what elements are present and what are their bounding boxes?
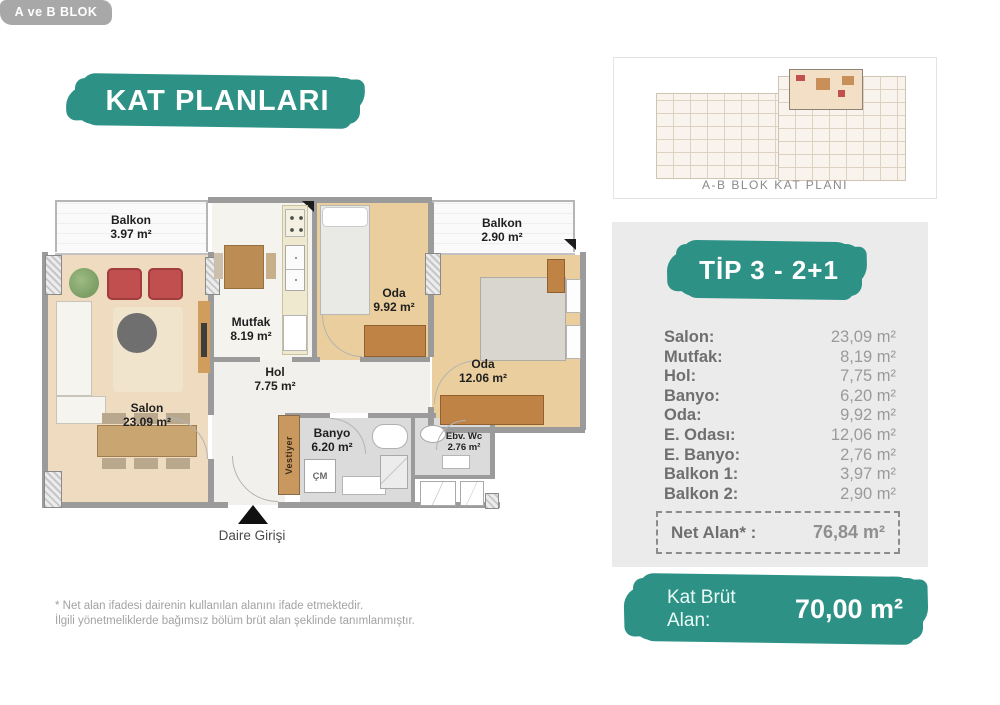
balcony-door-line — [432, 252, 575, 255]
room-name: Ebv. Wc — [446, 431, 482, 442]
gross-area-value: 70,00 m² — [779, 594, 903, 625]
wc-sink — [442, 455, 470, 469]
mini-plan-left-wing — [656, 93, 780, 179]
room-area: 2.90 m² — [481, 230, 522, 244]
block-overview-card: A-B BLOK KAT PLANI — [613, 57, 937, 199]
room-name: Hol — [254, 365, 295, 379]
label-balkon-2: Balkon 2.90 m² — [481, 216, 522, 244]
wall-segment — [208, 357, 260, 362]
room-name: Oda: — [664, 406, 778, 426]
mini-plan-highlighted-unit — [789, 69, 863, 110]
footnote-line2: İlgili yönetmeliklerde bağımsız bölüm br… — [55, 614, 415, 629]
round-rug — [117, 313, 157, 353]
kitchen-cabinet — [283, 315, 307, 351]
plant — [69, 268, 99, 298]
gross-area-banner: Kat Brüt Alan: 70,00 m² — [633, 578, 923, 640]
room-area-row: Oda: 9,92 m² — [664, 406, 896, 426]
wardrobe — [364, 325, 426, 357]
room-area: 9.92 m² — [373, 300, 414, 314]
room-area: 2,90 m² — [778, 485, 896, 505]
room-area-row: Banyo: 6,20 m² — [664, 387, 896, 407]
label-banyo: Banyo 6.20 m² — [311, 426, 352, 454]
room-area-row: E. Banyo: 2,76 m² — [664, 446, 896, 466]
wall-segment — [312, 203, 317, 360]
room-area: 23,09 m² — [778, 328, 896, 348]
block-badge: A ve B BLOK — [0, 0, 112, 25]
label-balkon-1: Balkon 3.97 m² — [110, 213, 151, 241]
wall-segment — [42, 502, 228, 508]
pillow — [322, 207, 368, 227]
hatched-pier — [425, 253, 441, 295]
washing-machine-label: ÇM — [313, 471, 328, 482]
vestiyer-closet: Vestiyer — [278, 415, 300, 495]
room-area: 6.20 m² — [311, 440, 352, 454]
kitchen-chair — [266, 253, 276, 279]
nightstand — [566, 279, 581, 313]
page-title-banner: KAT PLANLARI — [75, 78, 360, 124]
page-title: KAT PLANLARI — [105, 85, 329, 117]
flyer-page: KAT PLANLARI A ve B BLOK A-B BLOK KAT PL… — [0, 0, 1000, 705]
room-area: 2.76 m² — [446, 442, 482, 453]
room-area: 3,97 m² — [778, 465, 896, 485]
room-name: Salon — [123, 401, 171, 415]
room-name: Hol: — [664, 367, 778, 387]
armchair — [107, 268, 142, 300]
block-badge-label: A ve B BLOK — [15, 5, 98, 19]
room-area: 12,06 m² — [778, 426, 896, 446]
wall-segment — [368, 413, 436, 418]
dining-chair — [166, 458, 190, 469]
bathtub — [372, 424, 408, 449]
dining-chair — [102, 458, 126, 469]
overview-card-caption: A-B BLOK KAT PLANI — [614, 178, 936, 192]
wall-segment — [428, 295, 434, 357]
hatched-pier — [45, 255, 62, 295]
label-salon: Salon 23.09 m² — [123, 401, 171, 429]
neighbor-room-fragment — [420, 481, 456, 506]
dining-chair — [134, 458, 158, 469]
footnote: * Net alan ifadesi dairenin kullanılan a… — [55, 599, 415, 629]
wall-segment — [292, 357, 320, 362]
floor-plan: Vestiyer ÇM Balkon 3.97 m² Salon 23.09 m… — [42, 197, 590, 549]
room-area: 3.97 m² — [110, 227, 151, 241]
room-name: E. Odası: — [664, 426, 778, 446]
nightstand — [566, 325, 581, 359]
mini-plan-tan-mark — [842, 76, 854, 85]
hatched-pier — [44, 471, 62, 508]
mini-plan-tan-mark — [816, 78, 830, 90]
footnote-line1: * Net alan ifadesi dairenin kullanılan a… — [55, 599, 415, 614]
washing-machine: ÇM — [304, 459, 336, 493]
room-name: Banyo: — [664, 387, 778, 407]
room-name: Mutfak: — [664, 348, 778, 368]
kitchen-table — [224, 245, 264, 289]
hatched-pier — [485, 493, 499, 509]
label-mutfak: Mutfak 8.19 m² — [230, 315, 271, 343]
kitchen-chair — [214, 253, 223, 279]
room-area: 7,75 m² — [778, 367, 896, 387]
wall-segment — [360, 357, 430, 362]
room-area: 9,92 m² — [778, 406, 896, 426]
gross-area-label: Kat Brüt Alan: — [667, 586, 779, 632]
room-name: Balkon 2: — [664, 485, 778, 505]
room-hol — [212, 360, 430, 413]
wall-segment — [414, 475, 495, 479]
label-ebeveyn-wc: Ebv. Wc 2.76 m² — [446, 431, 482, 453]
room-area: 2,76 m² — [778, 446, 896, 466]
label-oda-1: Oda 9.92 m² — [373, 286, 414, 314]
room-area-row: Hol: 7,75 m² — [664, 367, 896, 387]
room-area: 23.09 m² — [123, 415, 171, 429]
vestiyer-label: Vestiyer — [284, 436, 294, 475]
room-name: Balkon — [481, 216, 522, 230]
room-area: 6,20 m² — [778, 387, 896, 407]
room-area-row: Balkon 2: 2,90 m² — [664, 485, 896, 505]
room-area-row: Mutfak: 8,19 m² — [664, 348, 896, 368]
entrance-label: Daire Girişi — [219, 528, 286, 543]
tv — [201, 323, 207, 357]
sofa — [56, 301, 92, 396]
wall-segment — [208, 197, 432, 203]
room-area-row: Balkon 1: 3,97 m² — [664, 465, 896, 485]
room-area: 7.75 m² — [254, 379, 295, 393]
stove — [285, 209, 305, 237]
net-area-box: Net Alan* : 76,84 m² — [656, 511, 900, 554]
net-area-label: Net Alan* : — [658, 523, 813, 543]
net-area-value: 76,84 m² — [813, 522, 898, 543]
wall-segment — [208, 459, 214, 504]
wardrobe — [547, 259, 565, 293]
mini-plan-red-mark — [838, 90, 845, 97]
shower — [380, 455, 408, 489]
unit-info-panel: TİP 3 - 2+1 Salon: 23,09 m² Mutfak: 8,19… — [612, 222, 928, 567]
room-area-list: Salon: 23,09 m² Mutfak: 8,19 m² Hol: 7,7… — [664, 328, 896, 504]
room-name: Oda — [459, 357, 507, 371]
unit-type-label: TİP 3 - 2+1 — [699, 255, 839, 285]
room-area-row: E. Odası: 12,06 m² — [664, 426, 896, 446]
room-area: 12.06 m² — [459, 371, 507, 385]
neighbor-room-fragment — [460, 481, 484, 506]
sofa-chaise — [56, 396, 106, 424]
mini-plan-red-mark — [796, 75, 805, 81]
entrance-arrow-icon — [238, 505, 268, 524]
room-name: Banyo — [311, 426, 352, 440]
room-area-row: Salon: 23,09 m² — [664, 328, 896, 348]
room-name: E. Banyo: — [664, 446, 778, 466]
double-sink — [285, 245, 305, 291]
room-name: Salon: — [664, 328, 778, 348]
room-name: Balkon — [110, 213, 151, 227]
room-area: 8,19 m² — [778, 348, 896, 368]
label-hol: Hol 7.75 m² — [254, 365, 295, 393]
room-name: Balkon 1: — [664, 465, 778, 485]
room-name: Oda — [373, 286, 414, 300]
armchair — [148, 268, 183, 300]
wall-segment — [428, 203, 434, 255]
unit-type-banner: TİP 3 - 2+1 — [676, 244, 862, 296]
room-name: Mutfak — [230, 315, 271, 329]
balcony-door-line — [55, 252, 208, 255]
label-oda-2: Oda 12.06 m² — [459, 357, 507, 385]
wall-segment — [411, 418, 415, 505]
room-area: 8.19 m² — [230, 329, 271, 343]
